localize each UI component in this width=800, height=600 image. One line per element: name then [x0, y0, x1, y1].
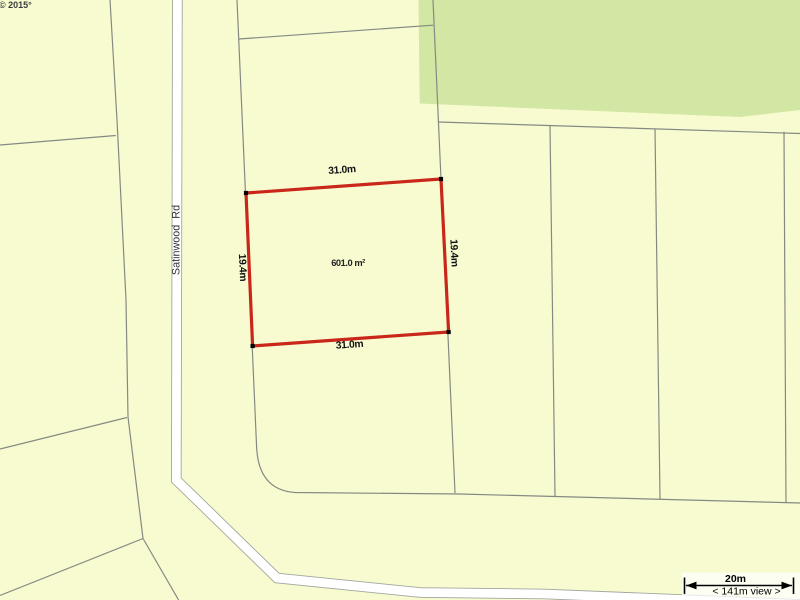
svg-text:20m: 20m [725, 573, 746, 585]
svg-text:19.4m: 19.4m [447, 239, 459, 267]
svg-text:< 141m view >: < 141m view > [712, 586, 780, 598]
svg-text:601.0 m²: 601.0 m² [331, 258, 365, 268]
svg-text:19.4m: 19.4m [236, 254, 248, 282]
svg-text:31.0m: 31.0m [335, 339, 363, 352]
svg-text:31.0m: 31.0m [328, 164, 356, 177]
svg-text:Satinwood Rd: Satinwood Rd [171, 205, 183, 275]
svg-text:© 2015°: © 2015° [0, 0, 32, 10]
